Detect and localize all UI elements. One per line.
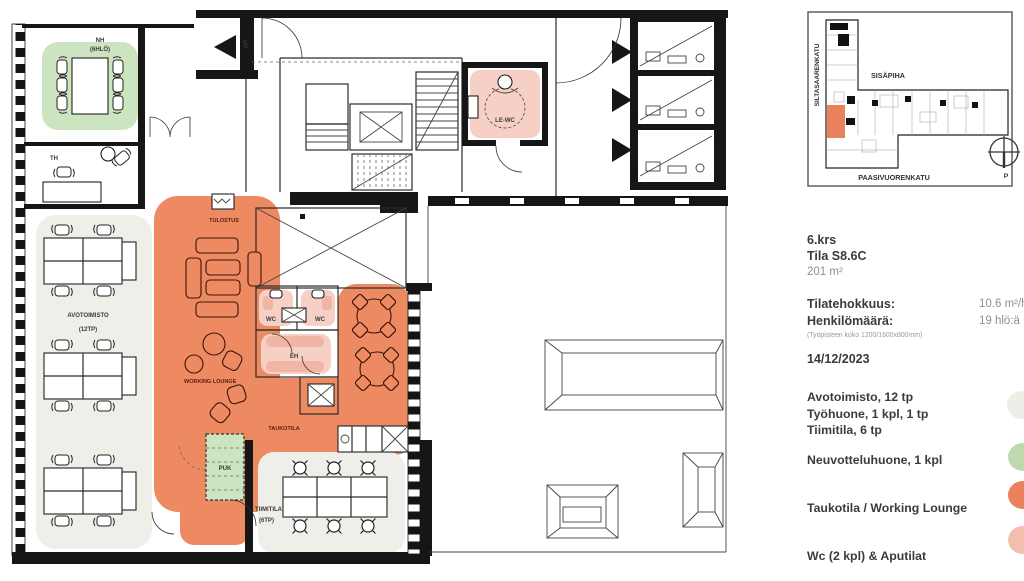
- open-office-label: AVOTOIMISTO: [67, 313, 109, 319]
- elevator-bank: [612, 14, 724, 190]
- accessible-wc-label: LE-WC: [495, 118, 515, 124]
- skylights: [545, 340, 723, 538]
- floor-label: 6.krs: [807, 233, 836, 247]
- stairs-right: [416, 72, 458, 150]
- highlighted-space: [827, 105, 845, 138]
- efficiency-value: 10.6 m²/h: [979, 298, 1024, 310]
- meeting-room-label: NH: [96, 38, 105, 44]
- space-area: 201 m²: [807, 266, 843, 278]
- headcount-label: Henkilömäärä:: [807, 314, 893, 328]
- legend-line: Työhuone, 1 kpl, 1 tp: [807, 406, 928, 423]
- wc-label: WC: [315, 317, 326, 323]
- team-room-capacity: (6TP): [259, 518, 274, 524]
- private-office: TH: [43, 147, 133, 202]
- sink: [270, 290, 282, 298]
- entry-arrow-icon: [214, 35, 236, 59]
- open-office: AVOTOIMISTO (12TP): [44, 225, 136, 526]
- office-label: TH: [50, 156, 58, 162]
- headcount-value: 19 hlö:ä: [979, 315, 1020, 327]
- street-label-left: SILTASAARENKATU: [814, 43, 821, 106]
- space-id: Tila S8.6C: [807, 249, 867, 263]
- elevator-cab: [640, 26, 712, 66]
- compass-label: P: [1004, 173, 1009, 180]
- floorplan-page: NH (6HLÖ) TH AVOTOIMISTO (12TP): [0, 0, 1024, 576]
- facade-window-wall: [12, 24, 25, 556]
- elevator-arrow-icon: [612, 138, 632, 162]
- toilet: [498, 75, 512, 89]
- sink: [312, 290, 324, 298]
- efficiency-label: Tilatehokkuus:: [807, 297, 895, 311]
- print-area-label: TULOSTUS: [209, 218, 239, 224]
- window-wall-courtyard: [408, 290, 420, 554]
- legend-line: Tiimitila, 6 tp: [807, 422, 928, 439]
- elevator-arrow-icon: [612, 88, 632, 112]
- side-table: [101, 147, 115, 161]
- wc-label: WC: [266, 317, 277, 323]
- legend-entry-offices: Avotoimisto, 12 tp Työhuone, 1 kpl, 1 tp…: [807, 389, 928, 439]
- elevator-arrow-icon: [612, 40, 632, 64]
- legend-entry-lounge: Taukotila / Working Lounge: [807, 500, 967, 517]
- meeting-room-capacity: (6HLÖ): [90, 46, 110, 53]
- elevator-cab: [640, 80, 712, 120]
- street-label-bottom: PAASIVUORENKATU: [858, 173, 930, 182]
- elevator-shaft-x: [350, 104, 412, 150]
- printer: [212, 194, 234, 209]
- workstation-note: (Työpisteen koko 1200/1600x800mm): [807, 332, 922, 339]
- location-minimap: SILTASAARENKATU SISÄPIHA PAASIVUORENKATU…: [808, 12, 1020, 186]
- desk: [43, 182, 101, 202]
- stairs-lower: [352, 154, 412, 190]
- legend-entry-meeting: Neuvotteluhuone, 1 kpl: [807, 452, 942, 469]
- washbasin: [468, 96, 478, 118]
- kitchen-counter: [338, 426, 408, 452]
- team-room-label: TIIMITILA: [255, 507, 283, 513]
- floor-plan-drawing: NH (6HLÖ) TH AVOTOIMISTO (12TP): [0, 0, 1024, 576]
- lockers-label: PUK: [219, 466, 232, 472]
- working-lounge-label: WORKING LOUNGE: [184, 379, 237, 385]
- break-room-label: TAUKOTILA: [268, 426, 299, 432]
- stairs-upper: [306, 124, 348, 150]
- legend-line: Avotoimisto, 12 tp: [807, 389, 928, 406]
- meeting-table: [72, 58, 108, 114]
- accessible-wc: LE-WC: [462, 62, 548, 172]
- legend-entry-wc: Wc (2 kpl) & Aputilat: [807, 548, 926, 565]
- open-office-capacity: (12TP): [79, 327, 97, 333]
- entry-hall-label: EH: [290, 354, 298, 360]
- courtyard-label: SISÄPIHA: [871, 71, 905, 80]
- elevator-cab: [640, 136, 712, 176]
- plan-date: 14/12/2023: [807, 352, 870, 366]
- entry-direction-label: UP: [241, 40, 247, 48]
